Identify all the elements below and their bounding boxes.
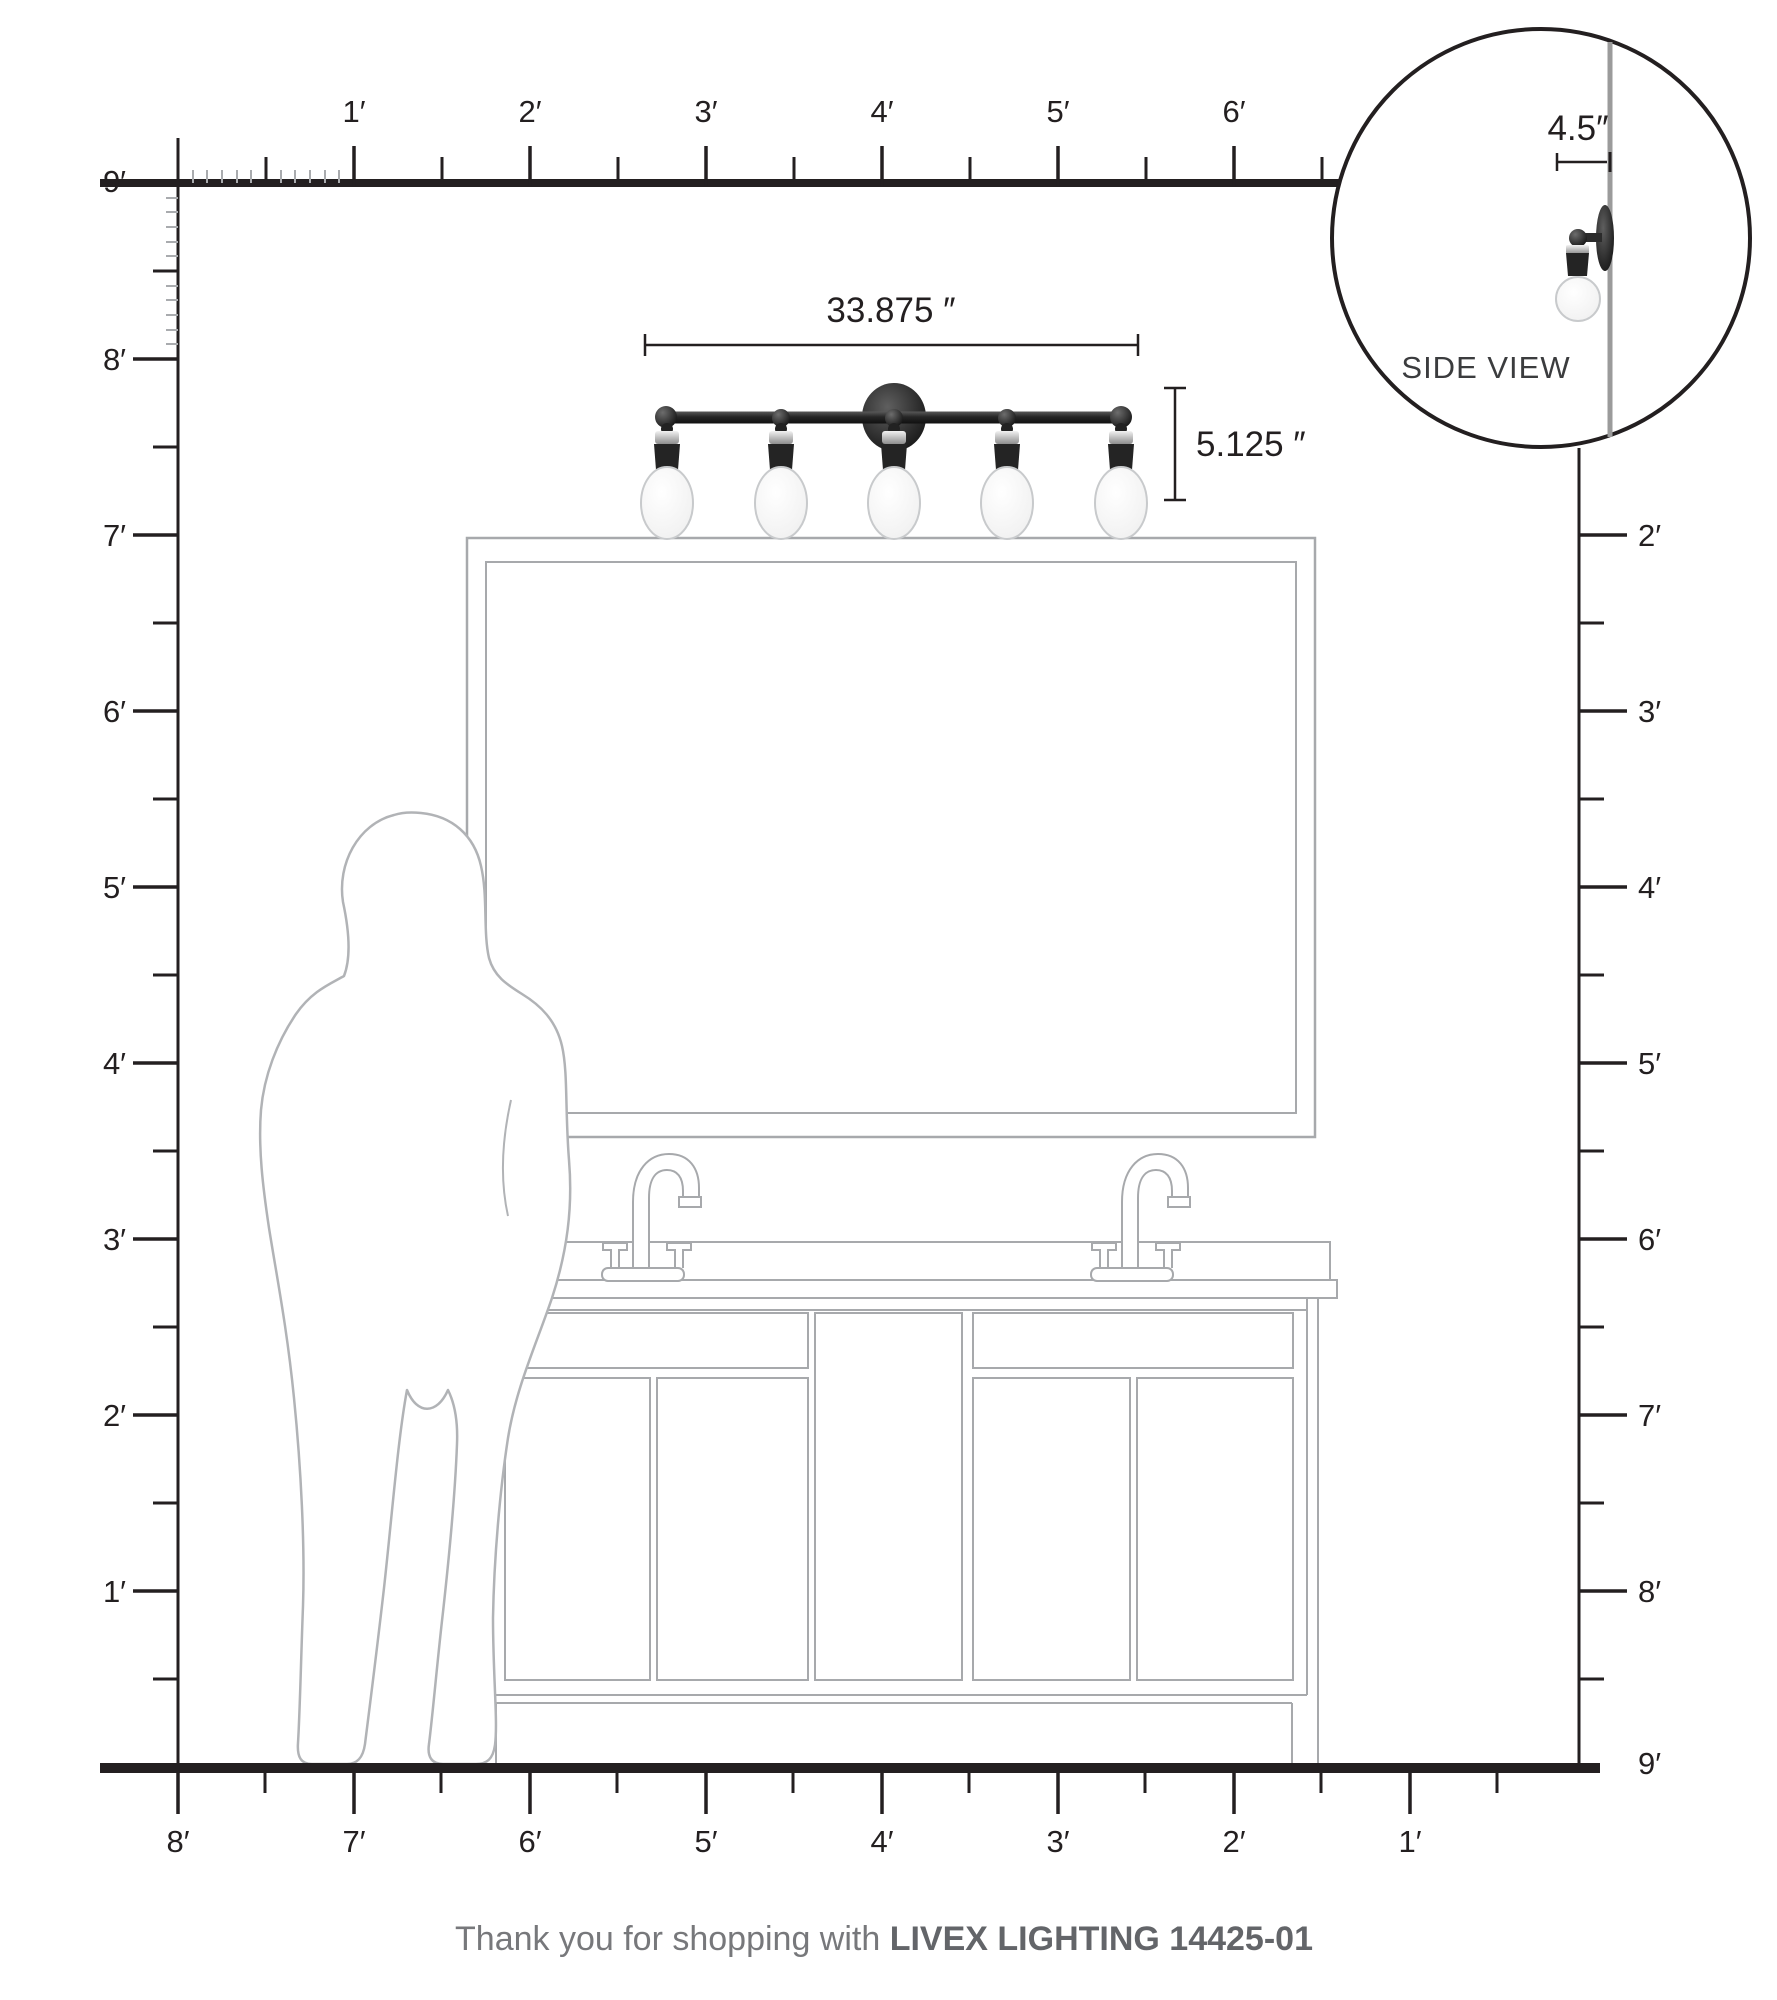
ruler-bottom-label: 2′	[1222, 1824, 1245, 1859]
person-silhouette	[260, 812, 570, 1764]
ruler-top-label: 3′	[694, 94, 717, 129]
ruler-top-label: 1′	[342, 94, 365, 129]
faucet-left	[602, 1154, 701, 1281]
ruler-top-label: 2′	[518, 94, 541, 129]
dimension-line-height	[1164, 388, 1186, 500]
vanity-countertop	[451, 1280, 1337, 1298]
footer-text: Thank you for shopping with	[455, 1920, 890, 1958]
mirror-inner-frame	[486, 562, 1296, 1113]
fixture-light-4	[981, 423, 1033, 539]
ruler-left-label: 1′	[103, 1574, 126, 1609]
ruler-bottom-label: 1′	[1398, 1824, 1421, 1859]
ruler-left-label: 3′	[103, 1222, 126, 1257]
light-bulb	[868, 467, 920, 539]
vanity-door	[1137, 1378, 1293, 1680]
ruler-left-label: 8′	[103, 342, 126, 377]
ruler-right: 2′ 3′ 4′ 5′ 6′ 7′ 8′ 9′	[1579, 448, 1661, 1781]
ruler-bottom-label: 8′	[166, 1824, 189, 1859]
socket-ferrule	[882, 431, 906, 444]
vanity-door	[657, 1378, 808, 1680]
footer-message: Thank you for shopping with LIVEX LIGHTI…	[455, 1920, 1313, 1958]
faucet-right	[1091, 1154, 1190, 1281]
ruler-right-label: 7′	[1638, 1398, 1661, 1433]
ruler-left-label: 4′	[103, 1046, 126, 1081]
ruler-left: 9′ 8′ 7′ 6′ 5′ 4′ 3′ 2′ 1′	[103, 138, 178, 1772]
sconce-bulb	[1556, 277, 1600, 321]
footer-brand: LIVEX LIGHTING 14425-01	[890, 1920, 1313, 1958]
ceiling-line	[100, 179, 1360, 187]
fixture-light-1	[641, 423, 693, 539]
ruler-right-label: 5′	[1638, 1046, 1661, 1081]
vanity-drawer-panel-left	[505, 1313, 808, 1368]
ruler-left-label: 5′	[103, 870, 126, 905]
faucet-spout-tip	[1168, 1197, 1190, 1207]
ruler-right-label: 9′	[1638, 1746, 1661, 1781]
vanity-backsplash	[458, 1242, 1330, 1280]
faucet-base	[1091, 1268, 1173, 1281]
ruler-left-half-ticks	[153, 271, 178, 1679]
ruler-bottom-label: 7′	[342, 1824, 365, 1859]
side-view-label: SIDE VIEW	[1401, 350, 1570, 385]
ruler-top-label: 5′	[1046, 94, 1069, 129]
ruler-top-label: 4′	[870, 94, 893, 129]
dimension-diagram: 1′ 2′ 3′ 4′ 5′ 6′ 9′ 8′ 7′ 6′ 5′ 4′ 3′ 2…	[0, 0, 1777, 2000]
ruler-bottom-label: 4′	[870, 1824, 893, 1859]
light-bulb	[1095, 467, 1147, 539]
vanity-door	[505, 1378, 650, 1680]
ruler-left-label: 7′	[103, 518, 126, 553]
floor-line	[100, 1763, 1600, 1773]
vanity-door	[973, 1378, 1130, 1680]
fixture-width-value: 33.875 ″	[826, 291, 955, 330]
ruler-left-label: 6′	[103, 694, 126, 729]
dimension-fixture-height: 5.125 ″	[1164, 388, 1306, 500]
ruler-bottom: 8′ 7′ 6′ 5′ 4′ 3′ 2′ 1′	[100, 1763, 1600, 1859]
ruler-bottom-label: 3′	[1046, 1824, 1069, 1859]
mirror-outer-frame	[467, 538, 1315, 1137]
faucet-spout-tip	[679, 1197, 701, 1207]
dimension-fixture-width: 33.875 ″	[645, 291, 1138, 356]
fixture-light-5	[1095, 423, 1147, 539]
ruler-right-label: 6′	[1638, 1222, 1661, 1257]
ruler-left-label: 2′	[103, 1398, 126, 1433]
socket-ferrule	[769, 431, 793, 444]
fixture-depth-value: 4.5″	[1547, 109, 1608, 148]
fixture-height-value: 5.125 ″	[1196, 425, 1306, 464]
ruler-right-label: 4′	[1638, 870, 1661, 905]
side-view-callout: 4.5″ SIDE VIEW	[1332, 29, 1750, 447]
size-chart-page: { "rulers": { "top": ["1\u2032","2\u2032…	[0, 0, 1777, 2000]
dimension-line-width	[645, 334, 1138, 356]
vanity-center-panel	[815, 1313, 962, 1680]
socket-ferrule	[1109, 431, 1133, 444]
sconce-cup	[1566, 253, 1589, 276]
sconce-joint-ball	[1569, 229, 1587, 247]
socket-ferrule	[995, 431, 1019, 444]
vanity-light-fixture	[641, 383, 1147, 539]
socket-ferrule	[655, 431, 679, 444]
faucet-base	[602, 1268, 684, 1281]
ruler-top-label: 6′	[1222, 94, 1245, 129]
mirror	[467, 538, 1315, 1137]
ruler-bottom-label: 5′	[694, 1824, 717, 1859]
ruler-top: 1′ 2′ 3′ 4′ 5′ 6′	[100, 94, 1360, 187]
vanity-legs	[496, 1703, 1292, 1765]
ruler-right-label: 2′	[1638, 518, 1661, 553]
light-bulb	[755, 467, 807, 539]
person-outline	[260, 812, 570, 1764]
sconce-ferrule	[1566, 245, 1589, 254]
ruler-right-half-ticks	[1579, 623, 1604, 1679]
ruler-right-foot-ticks	[1579, 535, 1627, 1591]
ruler-left-label: 9′	[103, 164, 126, 199]
fixture-light-2	[755, 423, 807, 539]
vanity-drawer-panel-right	[973, 1313, 1293, 1368]
vanity-cabinet	[451, 1242, 1337, 1765]
ruler-bottom-label: 6′	[518, 1824, 541, 1859]
light-bulb	[981, 467, 1033, 539]
light-bulb	[641, 467, 693, 539]
ruler-right-label: 8′	[1638, 1574, 1661, 1609]
ruler-right-label: 3′	[1638, 694, 1661, 729]
